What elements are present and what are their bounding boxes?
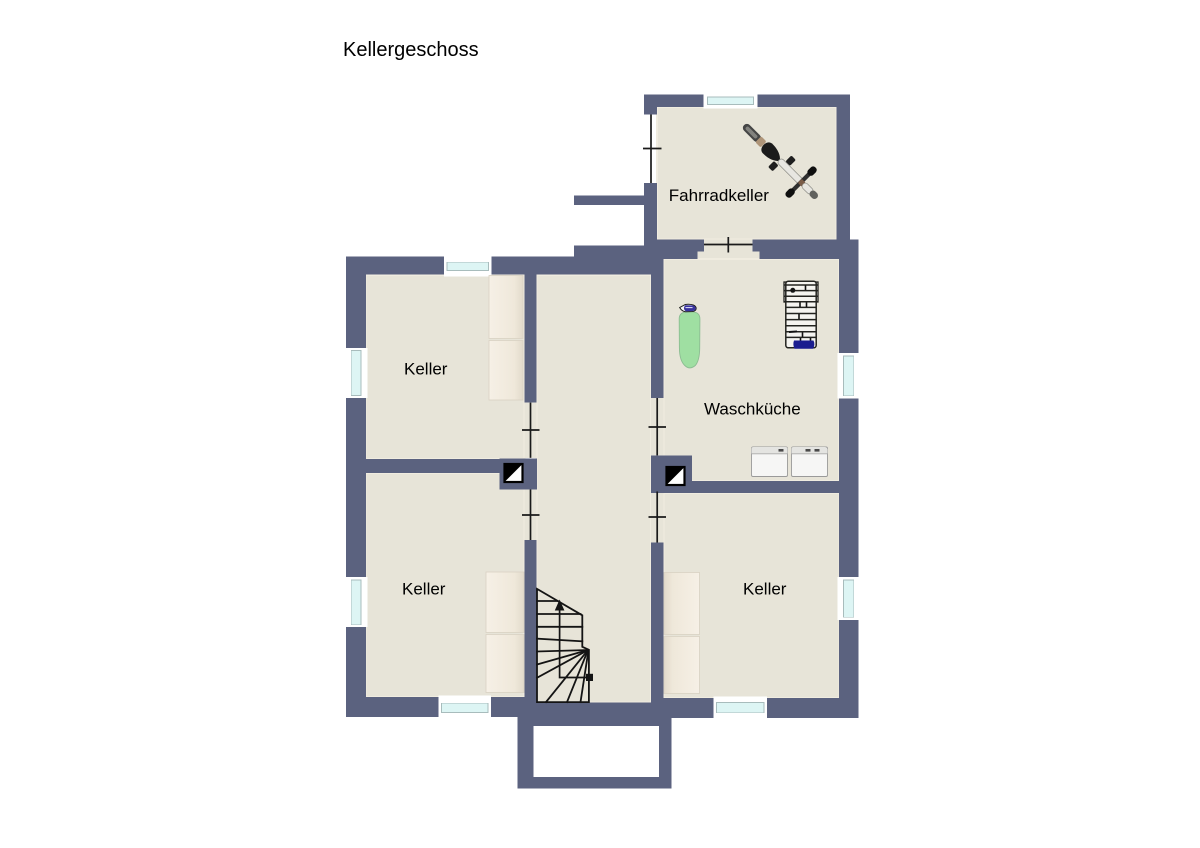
svg-text:Fahrradkeller: Fahrradkeller (669, 186, 769, 205)
svg-text:Kellergeschoss: Kellergeschoss (343, 39, 479, 61)
svg-text:Keller: Keller (404, 360, 448, 379)
svg-text:Keller: Keller (743, 579, 787, 598)
svg-text:Keller: Keller (402, 579, 446, 598)
svg-text:Waschküche: Waschküche (704, 399, 801, 418)
